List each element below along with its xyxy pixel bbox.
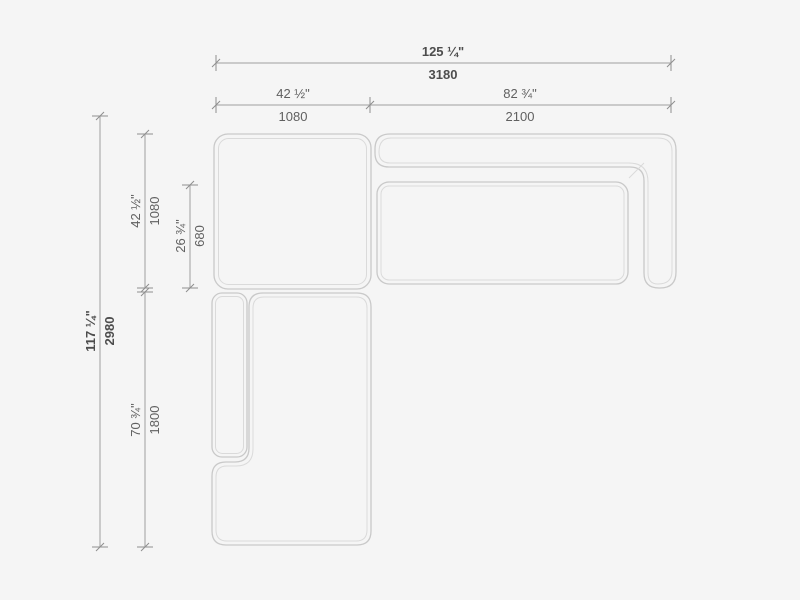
- dimension-label-inches: 125 ¼": [422, 44, 464, 59]
- dimension-label-inches: 42 ½": [276, 86, 310, 101]
- dimension-section-widths: 42 ½" 1080 82 ¾" 2100: [212, 86, 675, 124]
- dimension-label-mm: 1080: [279, 109, 308, 124]
- dimension-label-mm: 680: [192, 225, 207, 247]
- right-sofa-seat-outline: [377, 182, 628, 284]
- chaise-seat-outline: [212, 293, 371, 545]
- sofa-dimension-drawing: 125 ¼" 3180 42 ½" 1080 82 ¾" 2100 117 ¼"…: [0, 0, 800, 600]
- dimension-label-mm: 2100: [506, 109, 535, 124]
- corner-seam-line: [629, 163, 644, 178]
- right-sofa-module: [375, 134, 676, 288]
- chaise-arm-inner-line: [216, 297, 244, 454]
- right-sofa-back-arm-outline: [375, 134, 676, 288]
- dimension-label-inches: 42 ½": [128, 194, 143, 228]
- dimension-label-mm: 3180: [429, 67, 458, 82]
- dimension-label-mm: 1800: [147, 406, 162, 435]
- dimension-label-mm: 2980: [102, 317, 117, 346]
- dimension-label-inches: 82 ¾": [503, 86, 537, 101]
- dimension-label-inches: 117 ¼": [83, 310, 98, 352]
- corner-module-inner-line: [219, 139, 367, 285]
- chaise-seat-inner-line: [216, 297, 367, 541]
- right-sofa-seat-inner-line: [381, 186, 624, 280]
- technical-plan-svg: 125 ¼" 3180 42 ½" 1080 82 ¾" 2100 117 ¼"…: [0, 0, 800, 600]
- corner-module: [214, 134, 371, 289]
- dimension-overall-depth: 117 ¼" 2980: [83, 112, 117, 551]
- corner-module-outline: [214, 134, 371, 289]
- dimension-label-mm: 1080: [147, 197, 162, 226]
- dimension-label-inches: 70 ¾": [128, 403, 143, 437]
- chaise-module: [212, 293, 371, 545]
- dimension-chaise-length: 70 ¾" 1800: [128, 288, 162, 551]
- dimension-top-section-depth: 42 ½" 1080: [128, 130, 162, 292]
- dimension-overall-width: 125 ¼" 3180: [212, 44, 675, 82]
- chaise-arm-outline: [212, 293, 247, 457]
- dimension-label-inches: 26 ¾": [173, 219, 188, 253]
- dimension-seat-depth: 26 ¾" 680: [173, 181, 207, 292]
